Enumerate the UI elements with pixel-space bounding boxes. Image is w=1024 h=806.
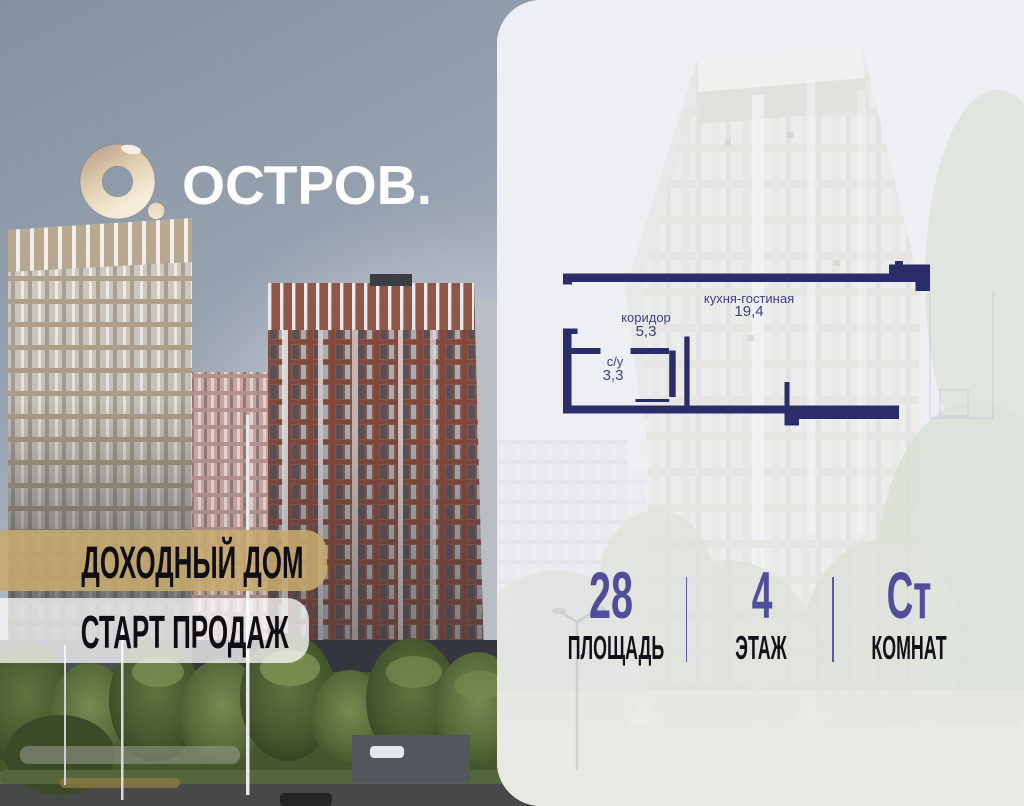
svg-text:ОСТРОВ.: ОСТРОВ. <box>182 154 432 216</box>
